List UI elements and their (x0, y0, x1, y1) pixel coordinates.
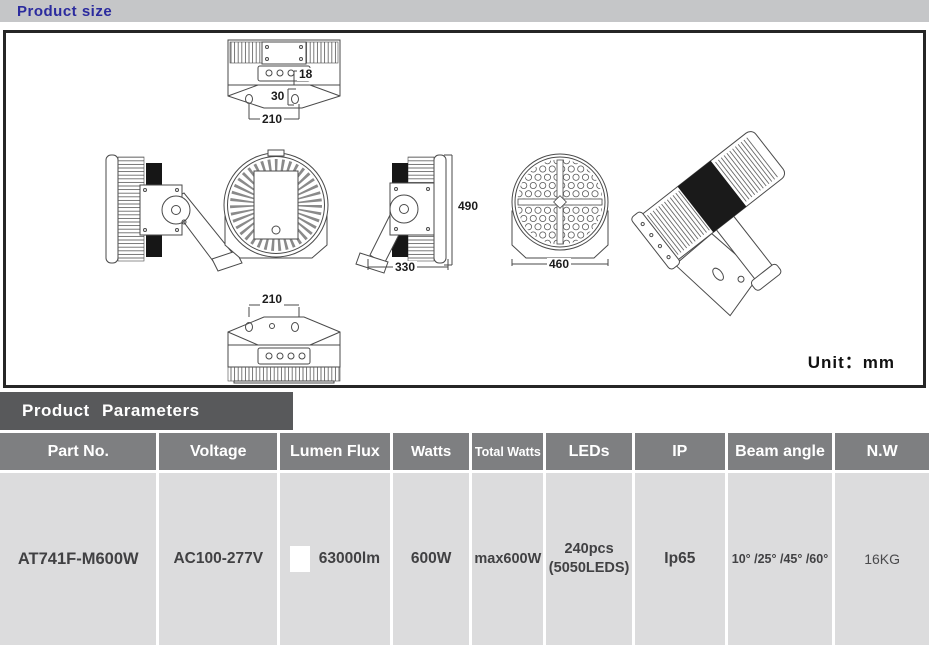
page-title: Product size (17, 3, 112, 20)
dim-label-18: 18 (297, 68, 314, 81)
col-header-nw: N.W (835, 433, 929, 470)
dim-label-330: 330 (393, 261, 417, 274)
watts-value: 600W (411, 550, 452, 568)
product-size-drawing-box: 18 30 210 490 330 460 210 Unit：mm (3, 30, 926, 388)
cell-ip: Ip65 (635, 473, 725, 645)
total-watts-value: max600W (474, 551, 541, 567)
page: Product size (0, 0, 929, 649)
section-bar-product-size: Product size (0, 0, 929, 22)
dim-label-30: 30 (269, 90, 286, 103)
cell-part-no: AT741F-M600W (0, 473, 156, 645)
cell-leds: 240pcs (5050LEDS) (546, 473, 632, 645)
lumen-swatch-box (290, 546, 310, 572)
col-header-part-no: Part No. (0, 433, 156, 470)
cell-total-watts: max600W (472, 473, 543, 645)
col-header-watts: Watts (393, 433, 470, 470)
lumen-flux-group: 63000lm (290, 546, 380, 572)
dim-label-210-top: 210 (260, 113, 284, 126)
parameters-section-title: Product Parameters (22, 401, 200, 421)
cell-beam-angle: 10° /25° /45° /60° (728, 473, 833, 645)
parameters-table: Part No. Voltage Lumen Flux Watts Total … (0, 433, 929, 645)
perspective-view-drawing (630, 126, 834, 328)
cell-lumen-flux: 63000lm (280, 473, 390, 645)
ip-value: Ip65 (664, 550, 695, 568)
cell-voltage: AC100-277V (159, 473, 277, 645)
col-header-leds: LEDs (546, 433, 632, 470)
beam-angle-value: 10° /25° /45° /60° (732, 552, 828, 566)
col-header-beam-angle: Beam angle (728, 433, 833, 470)
cell-nw: 16KG (835, 473, 929, 645)
dim-label-460: 460 (547, 258, 571, 271)
col-header-lumen-flux: Lumen Flux (280, 433, 390, 470)
table-header-row: Part No. Voltage Lumen Flux Watts Total … (0, 433, 929, 470)
leds-count: 240pcs (565, 540, 614, 559)
leds-type: (5050LEDS) (549, 559, 630, 578)
part-no-value: AT741F-M600W (18, 550, 139, 569)
bottom-view-drawing (228, 305, 340, 383)
voltage-value: AC100-277V (173, 550, 263, 568)
front-view-drawing (512, 154, 608, 266)
dim-label-490: 490 (456, 200, 480, 213)
section-bar-product-parameters: Product Parameters (0, 392, 293, 430)
dim-label-210-bottom: 210 (260, 293, 284, 306)
col-header-total-watts: Total Watts (472, 433, 543, 470)
cell-watts: 600W (393, 473, 470, 645)
top-view-drawing (228, 40, 340, 119)
unit-label: Unit：mm (808, 348, 895, 373)
nw-value: 16KG (864, 551, 900, 567)
col-header-ip: IP (635, 433, 725, 470)
side-view-left-drawing (106, 155, 242, 271)
col-header-voltage: Voltage (159, 433, 277, 470)
side-view-right-drawing (356, 155, 452, 273)
table-data-row: AT741F-M600W AC100-277V 63000lm 600W max… (0, 473, 929, 645)
rear-view-drawing (224, 150, 328, 258)
lumen-flux-value: 63000lm (319, 550, 380, 568)
